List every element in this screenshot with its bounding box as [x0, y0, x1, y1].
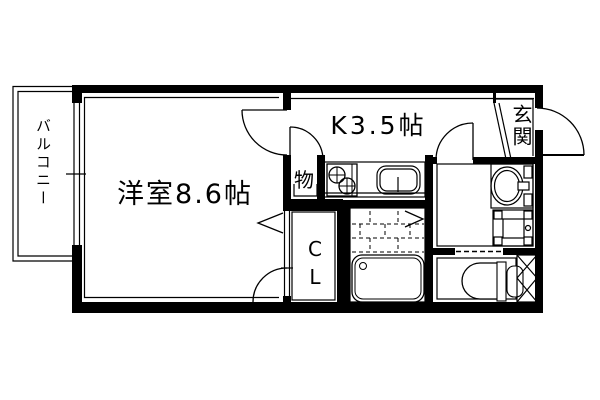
room-door-swing — [242, 110, 287, 155]
label-balcony: バルコニー — [33, 118, 54, 233]
bathtub-icon — [352, 255, 424, 302]
wall-left-upper — [72, 85, 82, 103]
label-closet: CL — [303, 237, 327, 289]
label-storage: 物 — [294, 164, 314, 193]
bath-tile-dashes — [352, 211, 424, 252]
wall-right-lower — [535, 155, 543, 302]
wall-bath-left — [343, 200, 350, 302]
label-entrance: 玄関 — [507, 104, 536, 162]
washroom-door-swing — [436, 123, 473, 160]
wash-basin-icon — [491, 164, 533, 208]
closet-wall-lines — [281, 211, 293, 302]
wall-bottom — [72, 302, 543, 313]
wall-left-lower — [72, 245, 82, 302]
wall-top — [72, 85, 543, 93]
floor-plan-drawing — [0, 0, 600, 400]
wall-bath-top — [343, 200, 432, 208]
sliding-window — [66, 103, 86, 245]
wall-closet-right — [337, 205, 343, 302]
toilet-threshold — [455, 248, 503, 255]
label-western-room: 洋室8.6帖 — [100, 172, 270, 211]
kitchen-sink-icon — [377, 166, 420, 194]
wall-room-kitchen-upper — [283, 85, 291, 110]
washing-machine-pan-icon — [493, 210, 533, 246]
stove-icon — [327, 164, 357, 196]
wall-right-upper — [535, 93, 543, 108]
label-kitchen: K3.5帖 — [316, 106, 441, 142]
floor-plan: 洋室8.6帖 K3.5帖 バルコニー 玄関 物 CL — [0, 0, 600, 400]
toilet-icon — [462, 262, 523, 301]
washroom-inner-line — [437, 164, 533, 246]
bath-folding-door-arrow — [405, 211, 423, 227]
entrance-door-jamb — [535, 130, 543, 155]
wall-storage-closet-band — [283, 199, 343, 211]
linework — [13, 87, 534, 303]
wall-washroom-top-left — [425, 157, 437, 164]
wall-bath-washroom — [425, 155, 433, 302]
entrance-door-swing — [537, 108, 584, 155]
closet-folding-door-arrow — [258, 213, 283, 233]
